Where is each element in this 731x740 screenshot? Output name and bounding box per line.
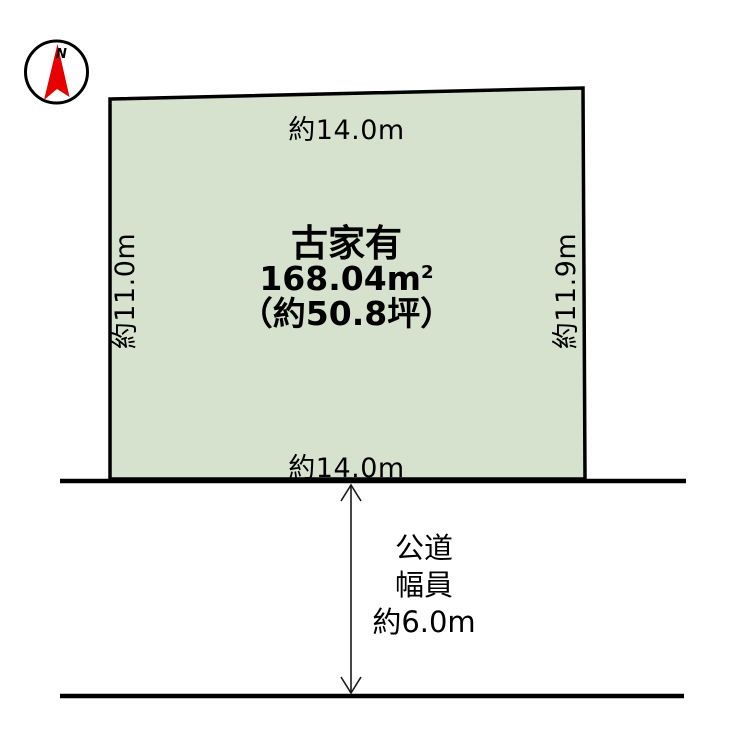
site-plan-diagram: N 約14.0m 約14.0m 約11.0m 約11.9m 古家有 168.04… bbox=[0, 0, 731, 740]
dimension-bottom: 約14.0m bbox=[110, 446, 583, 485]
dimension-top: 約14.0m bbox=[110, 108, 583, 147]
road-type-label: 公道 bbox=[334, 530, 514, 567]
compass-north-label: N bbox=[56, 47, 67, 62]
area-square-meters-value: 168.04m bbox=[259, 259, 421, 298]
area-square-meters: 168.04m2 bbox=[110, 262, 583, 296]
building-note: 古家有 bbox=[110, 225, 583, 262]
road-label-block: 公道 幅員 約6.0m bbox=[334, 530, 514, 641]
road-width-label: 幅員 bbox=[334, 567, 514, 604]
area-tsubo: （約50.8坪） bbox=[110, 296, 583, 331]
area-square-meters-exponent: 2 bbox=[421, 262, 434, 283]
road-width-value: 約6.0m bbox=[334, 604, 514, 641]
plot-info-block: 古家有 168.04m2 （約50.8坪） bbox=[110, 225, 583, 331]
